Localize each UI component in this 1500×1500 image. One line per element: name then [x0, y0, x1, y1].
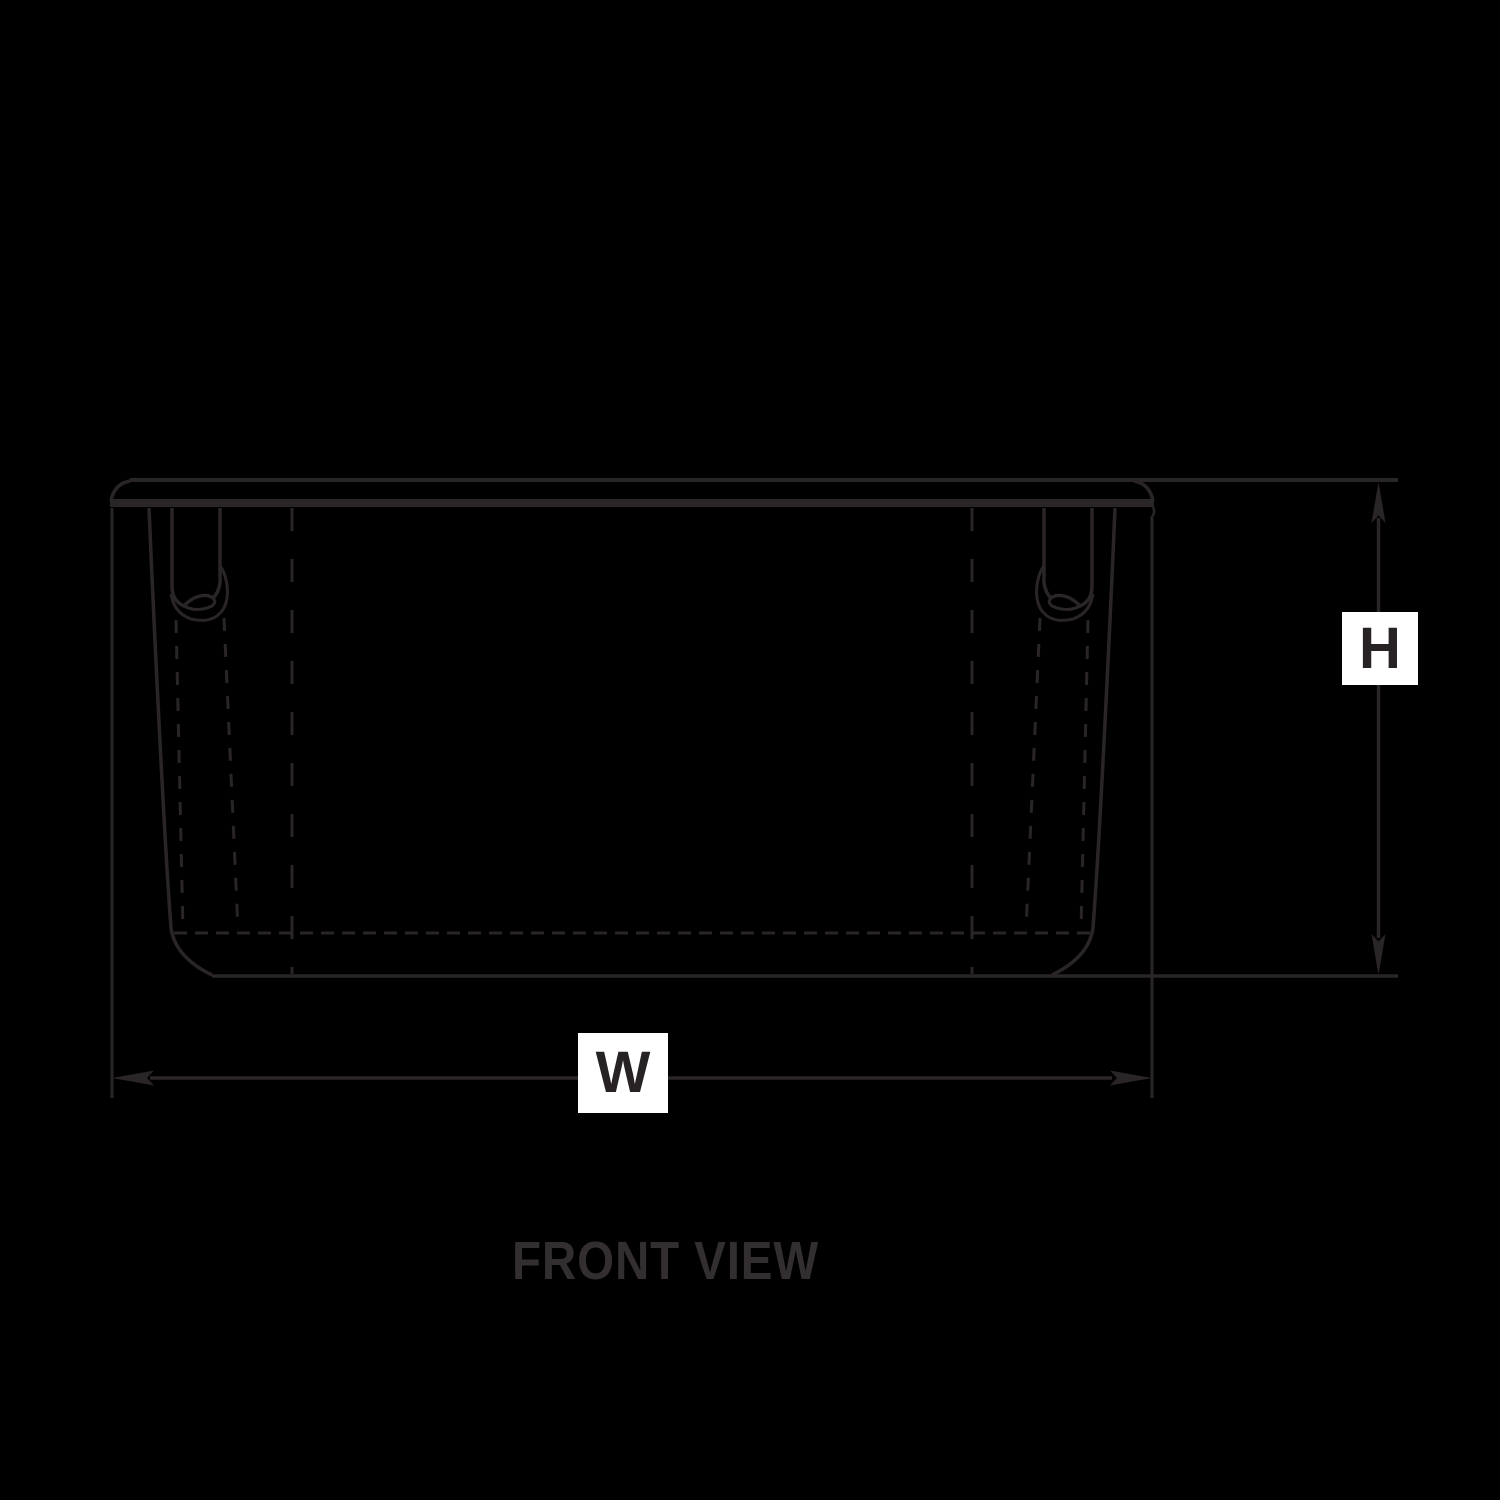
- view-caption: FRONT VIEW: [512, 1230, 819, 1292]
- handle-hidden-edge-left: [176, 620, 183, 930]
- bin-rim: [110, 480, 1398, 518]
- height-label: H: [1342, 612, 1418, 685]
- handle-hidden-edge-right: [224, 618, 238, 930]
- diagram-canvas: W H FRONT VIEW: [0, 0, 1500, 1500]
- body-outer-wall: [149, 508, 212, 975]
- width-label: W: [578, 1033, 668, 1113]
- width-dimension: [112, 508, 1152, 1098]
- height-dimension: [1372, 482, 1386, 975]
- h-arrow-up-icon: [1372, 482, 1386, 523]
- bin-bottom: [174, 933, 1398, 976]
- rim-right-hook: [1151, 507, 1154, 518]
- w-arrow-left-icon: [112, 1071, 154, 1086]
- w-arrow-right-icon: [1110, 1071, 1152, 1086]
- handle-recess-outline: [172, 508, 220, 606]
- bin-side-right: [972, 508, 1115, 975]
- handle-recess: [171, 508, 227, 620]
- rim-left-corner: [111, 481, 130, 501]
- rim-right-corner: [1134, 481, 1153, 501]
- rim-underside-bar: [110, 499, 1154, 507]
- h-arrow-down-icon: [1372, 934, 1386, 975]
- bin-side-left: [149, 508, 292, 975]
